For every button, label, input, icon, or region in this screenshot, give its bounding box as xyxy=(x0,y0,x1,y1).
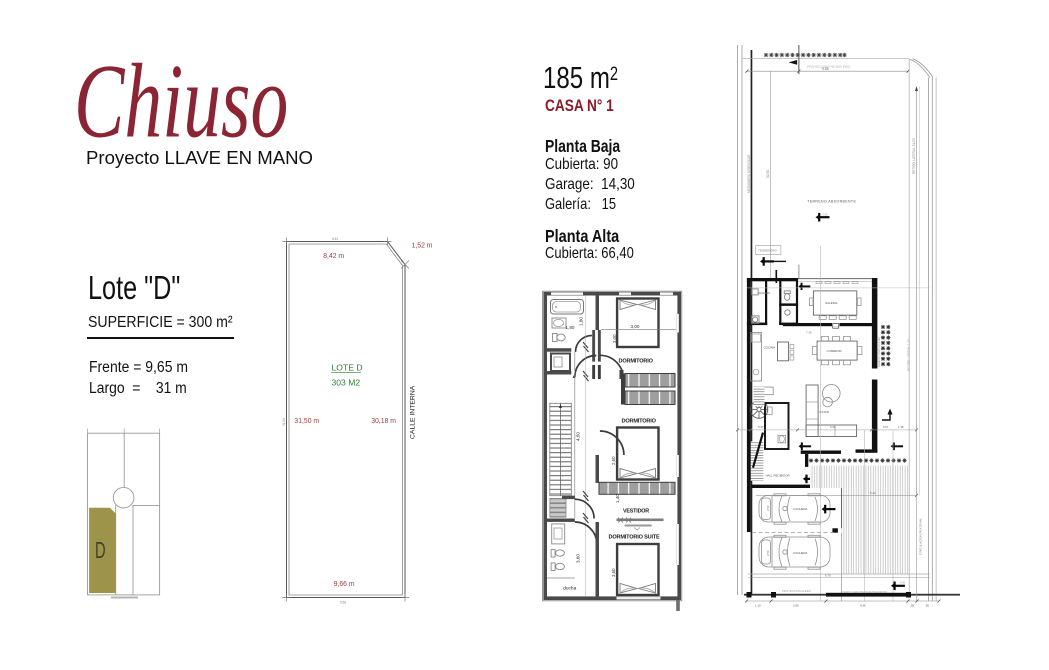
svg-text:303 M2: 303 M2 xyxy=(332,378,361,388)
svg-text:DORMITORIO SUITE: DORMITORIO SUITE xyxy=(609,535,661,541)
svg-text:GALERIA: GALERIA xyxy=(825,301,838,305)
svg-text:9.65: 9.65 xyxy=(822,67,829,71)
svg-text:3,00: 3,00 xyxy=(612,334,617,343)
svg-text:4,50: 4,50 xyxy=(576,432,581,441)
svg-text:8.42: 8.42 xyxy=(332,237,338,241)
svg-text:3,60: 3,60 xyxy=(576,554,581,563)
svg-text:TERRENO ABSORBENTE: TERRENO ABSORBENTE xyxy=(807,199,856,203)
svg-text:30,18 m: 30,18 m xyxy=(371,418,396,425)
svg-text:DORMITORIO: DORMITORIO xyxy=(622,419,657,425)
svg-text:1,80: 1,80 xyxy=(566,325,575,330)
svg-text:CERCO FRENTE TRANSPARENTE: CERCO FRENTE TRANSPARENTE xyxy=(842,590,887,594)
svg-text:9,66 m: 9,66 m xyxy=(334,581,355,588)
svg-text:32.50: 32.50 xyxy=(766,170,770,178)
svg-text:COCHERA: COCHERA xyxy=(793,551,808,555)
svg-text:CERCO VIVO H=1.80: CERCO VIVO H=1.80 xyxy=(877,337,881,367)
svg-text:2,60: 2,60 xyxy=(611,456,616,465)
svg-text:0.00: 0.00 xyxy=(900,581,906,585)
svg-text:7.38: 7.38 xyxy=(806,331,812,335)
svg-text:RETIRO LATERAL 31.50: RETIRO LATERAL 31.50 xyxy=(912,138,916,174)
svg-text:0.00: 0.00 xyxy=(823,213,829,217)
svg-text:4.36: 4.36 xyxy=(860,604,866,608)
svg-text:LAVADERO: LAVADERO xyxy=(758,292,771,295)
svg-text:PROYECCION ALERO: PROYECCION ALERO xyxy=(782,589,812,593)
svg-text:.90: .90 xyxy=(925,604,929,608)
svg-text:5.41: 5.41 xyxy=(870,491,876,495)
svg-text:PROYECCION PB+1ER PISO: PROYECCION PB+1ER PISO xyxy=(807,65,851,69)
svg-text:CIRCULACION PEATONAL: CIRCULACION PEATONAL xyxy=(919,517,923,555)
svg-text:COMEDOR: COMEDOR xyxy=(827,349,842,353)
svg-text:CALLE INTERNA: CALLE INTERNA xyxy=(410,385,417,439)
svg-text:9.66: 9.66 xyxy=(340,601,346,605)
svg-text:5.90: 5.90 xyxy=(830,425,836,429)
svg-text:6.70: 6.70 xyxy=(825,574,831,578)
svg-text:2.55: 2.55 xyxy=(793,604,799,608)
svg-text:1.10: 1.10 xyxy=(755,604,761,608)
svg-text:1,40: 1,40 xyxy=(615,494,620,503)
svg-text:DORMITORIO: DORMITORIO xyxy=(619,359,654,365)
svg-text:5.97: 5.97 xyxy=(758,425,764,429)
svg-text:COCINA: COCINA xyxy=(764,346,776,350)
svg-text:MEDIANERA S/REVOCAR: MEDIANERA S/REVOCAR xyxy=(747,154,751,193)
svg-text:VESTIDOR: VESTIDOR xyxy=(623,509,649,515)
svg-text:2.50: 2.50 xyxy=(766,505,770,511)
svg-text:31,50 m: 31,50 m xyxy=(294,418,319,425)
svg-text:6.07: 6.07 xyxy=(883,425,889,429)
svg-text:1.38: 1.38 xyxy=(898,425,904,429)
svg-text:ducha: ducha xyxy=(563,586,576,592)
svg-text:D: D xyxy=(95,539,106,564)
svg-text:HALL RECIBIDOR: HALL RECIBIDOR xyxy=(766,474,790,478)
svg-text:RETIRO LATERAL 1.20: RETIRO LATERAL 1.20 xyxy=(907,339,911,371)
svg-text:1,52 m: 1,52 m xyxy=(412,242,433,249)
svg-text:LOTE D: LOTE D xyxy=(332,363,363,373)
svg-text:8,42 m: 8,42 m xyxy=(323,253,344,260)
svg-text:3,60: 3,60 xyxy=(611,568,616,577)
svg-text:.28: .28 xyxy=(910,604,914,608)
svg-text:COCHERA: COCHERA xyxy=(793,507,808,511)
svg-text:TENDEDERO: TENDEDERO xyxy=(758,249,778,253)
svg-text:1,80: 1,80 xyxy=(579,317,584,326)
svg-text:ESTAR: ESTAR xyxy=(820,410,829,414)
svg-text:31.50: 31.50 xyxy=(282,418,286,426)
svg-text:2.50: 2.50 xyxy=(766,550,770,556)
svg-text:3,00: 3,00 xyxy=(631,324,640,329)
